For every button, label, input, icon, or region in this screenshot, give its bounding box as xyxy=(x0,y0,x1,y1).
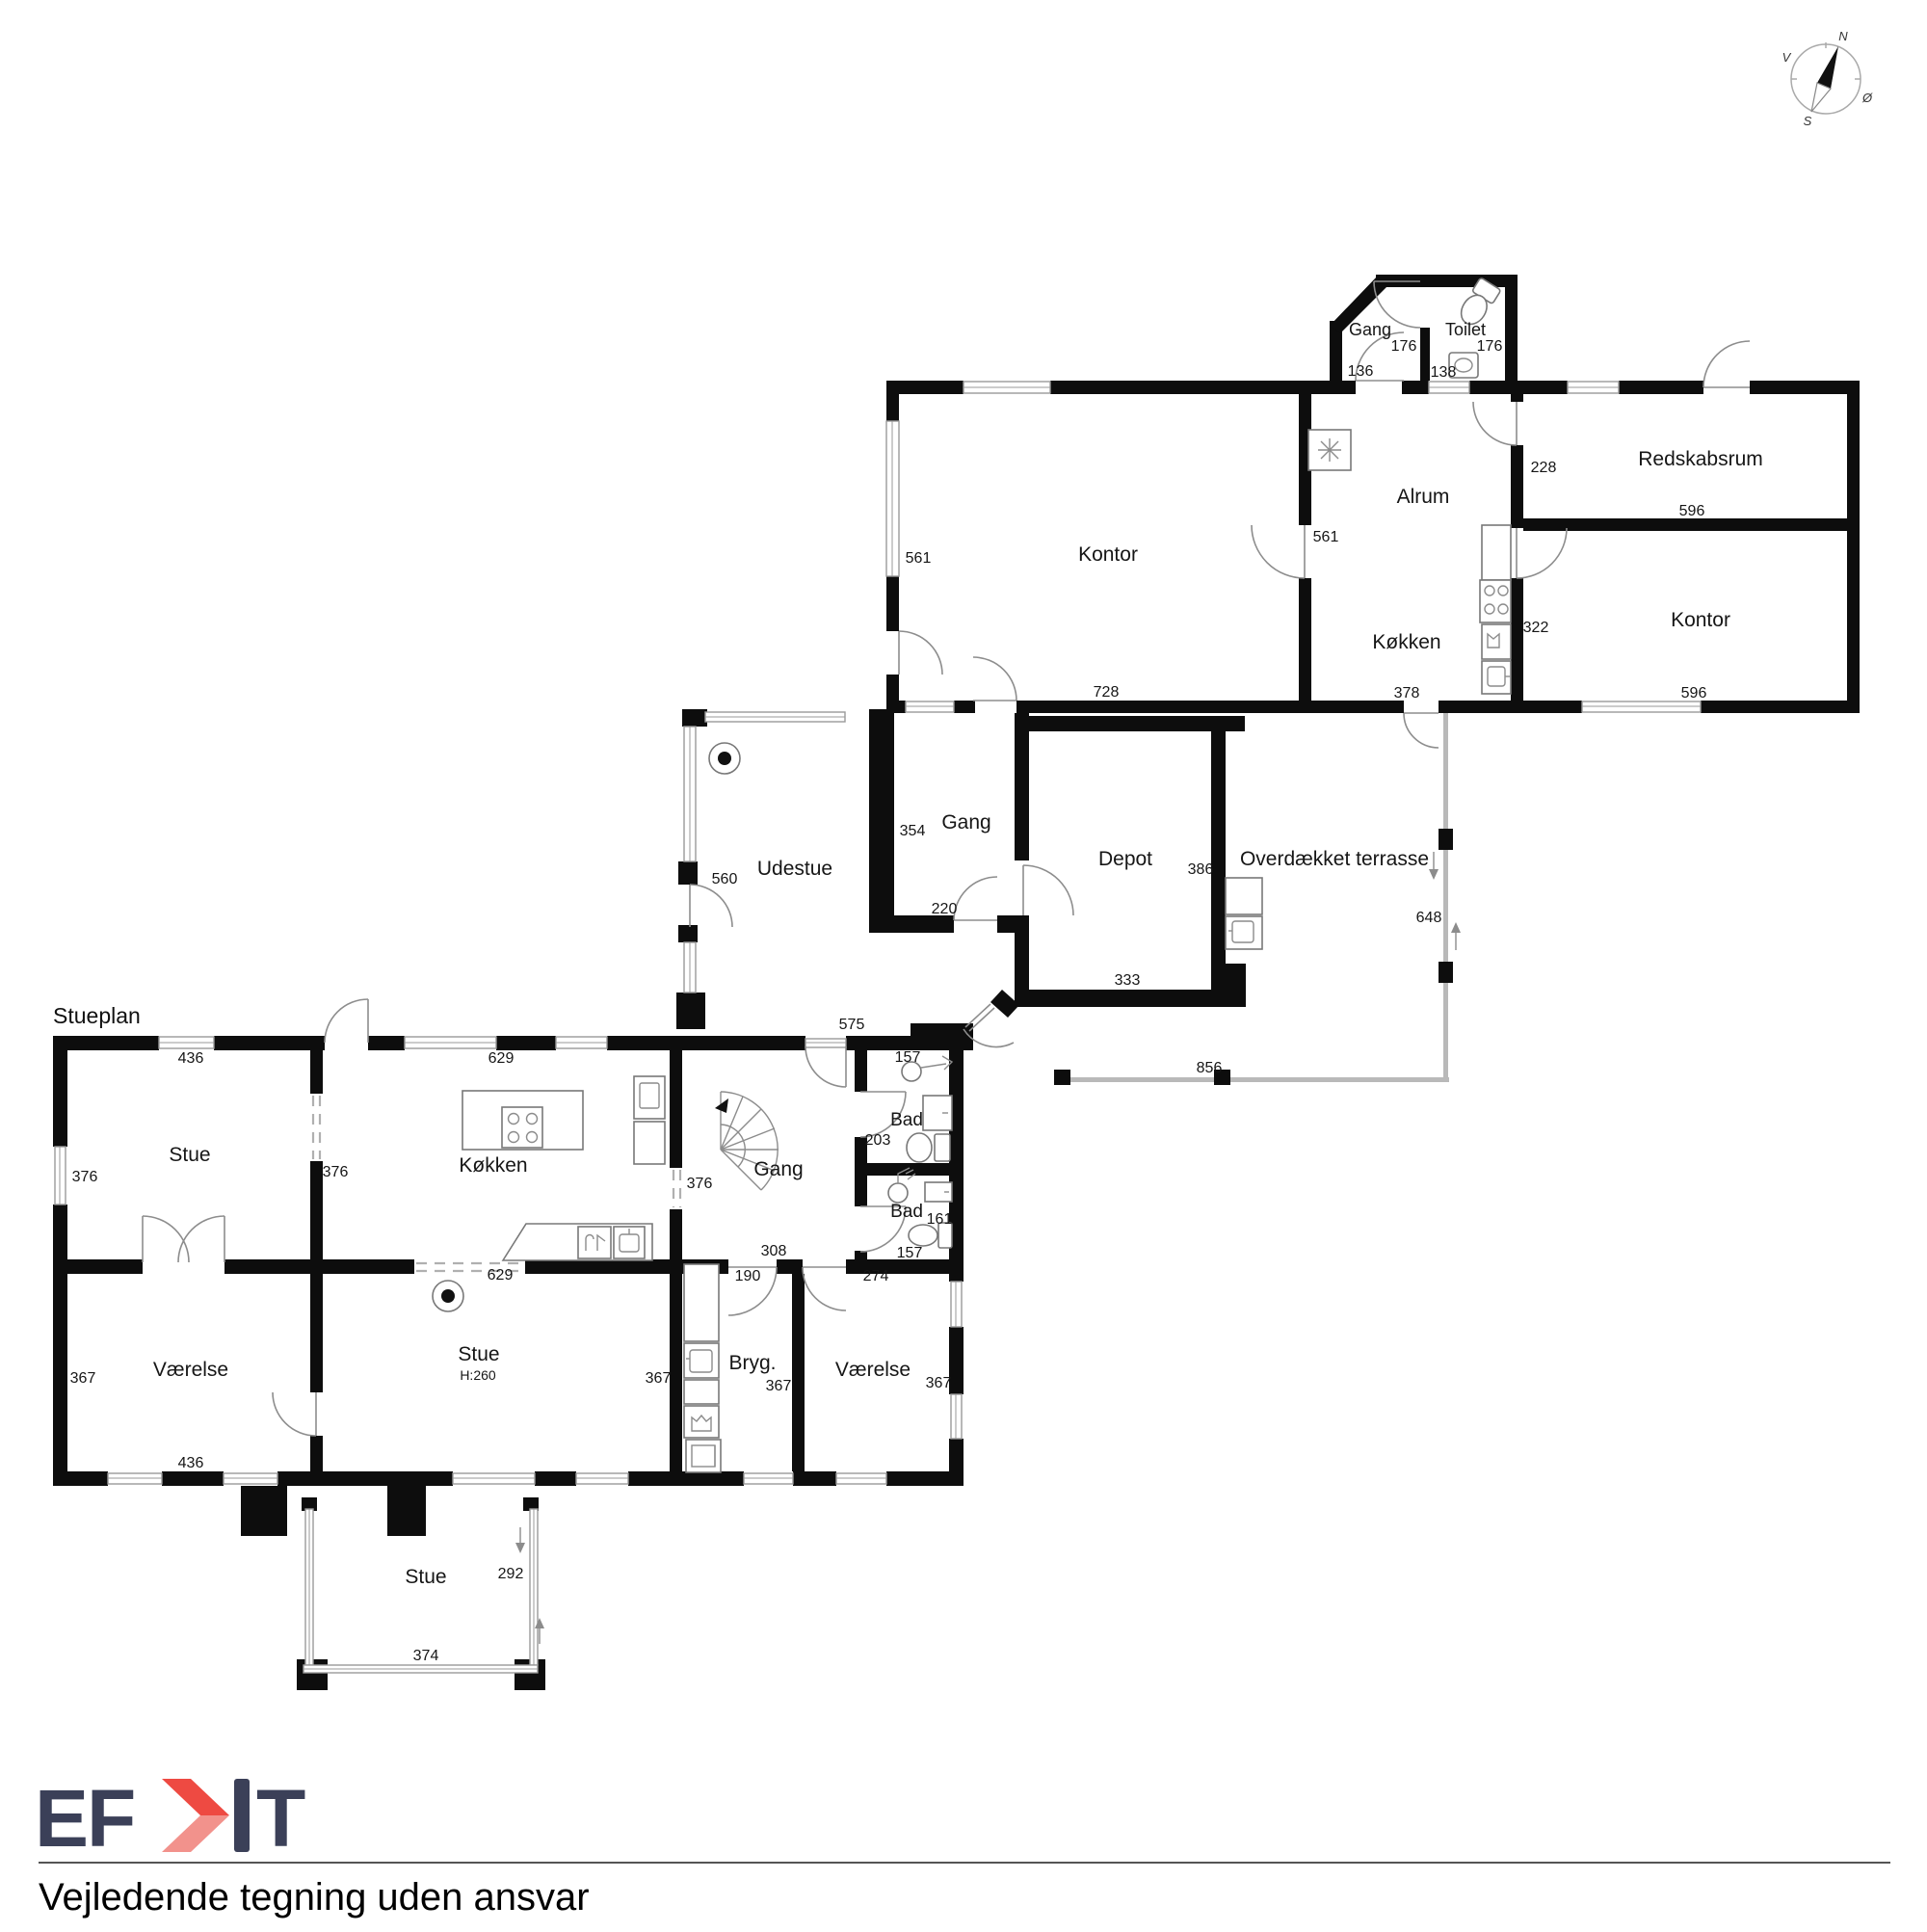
room-label-koekken-lower: Køkken xyxy=(459,1154,527,1177)
arrow-up-icon xyxy=(1451,922,1461,950)
dimension-label: 376 xyxy=(72,1169,98,1185)
compass-needle-south xyxy=(1811,83,1831,112)
dishwasher-icon-lower xyxy=(578,1227,611,1258)
door-kontor-right xyxy=(1517,528,1567,578)
room-label-koekken-upper: Køkken xyxy=(1372,631,1440,653)
terrace-sink-icon xyxy=(1226,878,1262,949)
kitchen-counter-lower xyxy=(503,1224,652,1260)
door-gang-mid-bottom xyxy=(954,877,997,920)
door-double-stue xyxy=(143,1216,224,1262)
fridge-icon xyxy=(634,1076,665,1164)
compass-v-label: V xyxy=(1782,50,1792,65)
kitchen-counter-upper xyxy=(1480,525,1511,694)
dimension-label: 367 xyxy=(70,1370,96,1387)
room-label-vaerelse-right: Værelse xyxy=(835,1359,911,1381)
room-label-vaerelse-left: Værelse xyxy=(153,1359,228,1381)
compass-n-label: N xyxy=(1838,29,1848,43)
dimension-label: 157 xyxy=(897,1245,923,1261)
sink-icon-bryggers xyxy=(684,1343,719,1378)
door-kontor-bottom xyxy=(973,657,1016,701)
dimension-label: 138 xyxy=(1431,364,1457,381)
sink-icon-upper xyxy=(1482,661,1511,694)
sink-icon-lower xyxy=(614,1227,645,1258)
floorplan-page: Gang Toilet Kontor Alrum Køkken Redskabs… xyxy=(0,0,1927,1927)
dimension-label: 856 xyxy=(1197,1060,1223,1076)
door-koekken-terrasse xyxy=(1404,713,1439,748)
dimension-label: 136 xyxy=(1348,363,1374,380)
room-label-toilet: Toilet xyxy=(1445,320,1486,339)
arrow-down-icon xyxy=(1429,852,1439,880)
compass-s-label: S xyxy=(1804,114,1812,128)
dimension-label: 376 xyxy=(687,1176,713,1192)
kitchen-island xyxy=(462,1091,583,1150)
dimension-label: 228 xyxy=(1531,460,1557,476)
fireplace-icon xyxy=(1308,430,1351,470)
room-note-stue-center: H:260 xyxy=(460,1367,496,1383)
room-label-stue-left: Stue xyxy=(169,1144,210,1166)
compass-east-label: Ø xyxy=(1861,91,1873,105)
door-redskabsrum-out xyxy=(1703,341,1750,387)
stove-icon-upper xyxy=(1480,580,1511,622)
footer-divider xyxy=(39,1862,1890,1864)
dishwasher-icon-upper xyxy=(1482,624,1511,659)
stove-icon-island xyxy=(502,1107,542,1148)
dimension-label: 596 xyxy=(1681,685,1707,701)
dimension-label: 274 xyxy=(863,1268,889,1284)
door-kontor-left xyxy=(899,631,942,675)
dimension-label: 354 xyxy=(900,823,926,839)
room-label-bryggers: Bryg. xyxy=(728,1352,776,1374)
dimension-label: 629 xyxy=(488,1050,515,1067)
dimension-label: 367 xyxy=(766,1378,792,1394)
logo-text-ef: EF xyxy=(35,1773,134,1864)
room-label-kontor-upper: Kontor xyxy=(1078,543,1138,566)
door-gang-depot xyxy=(1023,865,1073,915)
fixtures-layer xyxy=(433,278,1511,1472)
disclaimer-text: Vejledende tegning uden ansvar xyxy=(39,1876,590,1919)
room-label-gang-top: Gang xyxy=(1349,320,1391,339)
dimension-label: 436 xyxy=(178,1050,204,1067)
dimension-label: 436 xyxy=(178,1455,204,1471)
dimension-label: 190 xyxy=(735,1268,761,1284)
washing-machine-icon xyxy=(686,1440,721,1472)
room-label-bad-upper: Bad xyxy=(890,1110,923,1130)
dimension-label: 386 xyxy=(1188,861,1214,878)
room-label-gang-mid: Gang xyxy=(941,811,990,834)
dimension-label: 648 xyxy=(1416,910,1442,926)
door-vaerelse-left xyxy=(273,1392,316,1436)
dimension-label: 560 xyxy=(712,871,738,887)
dimension-label: 367 xyxy=(926,1375,952,1391)
arrow-down-icon-conservatory xyxy=(515,1527,525,1553)
dimension-label: 728 xyxy=(1094,684,1120,701)
toilet-icon-bad-upper xyxy=(907,1133,950,1162)
logo-chevron-icon xyxy=(162,1779,229,1852)
dimension-label: 596 xyxy=(1679,503,1705,519)
dimension-label: 161 xyxy=(927,1211,953,1228)
room-label-terrasse: Overdækket terrasse xyxy=(1240,848,1429,870)
door-entrance xyxy=(805,1046,846,1087)
door-stue-top-out xyxy=(325,999,368,1043)
dimension-label: 378 xyxy=(1394,685,1420,701)
dimension-label: 292 xyxy=(498,1566,524,1582)
footer: EF T Vejledende tegning uden ansvar xyxy=(35,1773,1890,1919)
room-label-kontor-right: Kontor xyxy=(1671,609,1730,631)
dimension-label: 629 xyxy=(488,1267,514,1284)
logo-bar xyxy=(234,1779,250,1852)
room-label-udestue: Udestue xyxy=(757,858,832,880)
dimension-label: 561 xyxy=(1313,529,1339,545)
wood-stove-icon-stue xyxy=(433,1281,463,1311)
shelf-icon-bad-lower xyxy=(925,1182,952,1202)
room-label-stue-conservatory: Stue xyxy=(405,1566,446,1588)
dimension-label: 575 xyxy=(839,1017,865,1033)
dimension-label: 333 xyxy=(1115,972,1141,989)
room-label-alrum: Alrum xyxy=(1397,486,1450,508)
room-label-depot: Depot xyxy=(1098,848,1152,870)
dimension-label: 374 xyxy=(413,1648,439,1664)
room-label-redskabsrum: Redskabsrum xyxy=(1638,448,1763,470)
logo-text-t: T xyxy=(256,1773,305,1864)
door-vaerelse-right xyxy=(803,1267,846,1310)
compass-needle-north xyxy=(1817,46,1838,89)
dimension-label: 203 xyxy=(865,1132,891,1149)
dimension-label: 308 xyxy=(761,1243,787,1259)
room-label-stue-center: Stue xyxy=(458,1343,499,1365)
dimension-label: 376 xyxy=(323,1164,349,1180)
room-label-gang-lower: Gang xyxy=(753,1158,803,1180)
room-label-bad-lower: Bad xyxy=(890,1202,923,1222)
door-udestue-left xyxy=(690,885,732,927)
dimension-label: 322 xyxy=(1523,620,1549,636)
plan-title: Stueplan xyxy=(53,1003,141,1028)
floorplan-drawing: Gang Toilet Kontor Alrum Køkken Redskabs… xyxy=(0,0,1927,1927)
door-kontor-alrum xyxy=(1252,525,1305,578)
dimension-label: 220 xyxy=(932,901,958,917)
dimension-label: 176 xyxy=(1391,338,1417,355)
dimension-label: 367 xyxy=(646,1370,672,1387)
dimension-label: 176 xyxy=(1477,338,1503,355)
bryggers-appliances xyxy=(684,1264,721,1472)
laundry-basket-icon xyxy=(684,1406,719,1438)
shelf-icon-bad-upper xyxy=(923,1096,952,1130)
compass-rose: N V S Ø xyxy=(1782,29,1873,128)
door-alrum-redskabsrum xyxy=(1473,402,1517,445)
wood-stove-icon-udestue xyxy=(709,743,740,774)
dimension-label: 157 xyxy=(895,1049,921,1066)
dimension-label: 561 xyxy=(906,550,932,567)
